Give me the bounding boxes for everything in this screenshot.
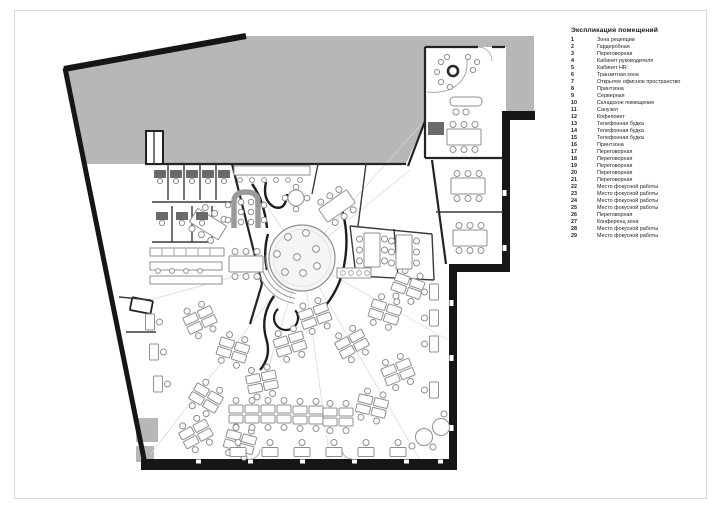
legend-item-number: 5 <box>571 65 597 72</box>
legend-item-number: 29 <box>571 233 597 240</box>
legend-item-label: Место фокусной работы <box>597 226 717 233</box>
legend-row: 7 Открытое офисное пространство <box>571 79 717 86</box>
legend-item-label: Открытое офисное пространство <box>597 79 717 86</box>
legend-row: 4 Кабинет руководителя <box>571 58 717 65</box>
legend-item-label: Санузел <box>597 107 717 114</box>
legend-item-label: Место фокусной работы <box>597 233 717 240</box>
legend-row: 24 Место фокусной работы <box>571 198 717 205</box>
legend-item-label: Серверная <box>597 93 717 100</box>
legend-row: 9 Серверная <box>571 93 717 100</box>
legend-item-number: 25 <box>571 205 597 212</box>
legend-item-number: 7 <box>571 79 597 86</box>
legend-row: 18 Переговорная <box>571 156 717 163</box>
legend-item-label: Кофепоинт <box>597 114 717 121</box>
legend-row: 29 Место фокусной работы <box>571 233 717 240</box>
legend-item-number: 3 <box>571 51 597 58</box>
legend-item-number: 16 <box>571 142 597 149</box>
legend-row: 15 Телефонная будка <box>571 135 717 142</box>
legend-item-label: Кабинет руководителя <box>597 58 717 65</box>
legend-item-label: Переговорная <box>597 149 717 156</box>
legend-row: 14 Телефонная будка <box>571 128 717 135</box>
legend-item-number: 18 <box>571 156 597 163</box>
legend-item-number: 10 <box>571 100 597 107</box>
legend-row: 1 Зона рецепции <box>571 37 717 44</box>
legend-row: 10 Складское помещение <box>571 100 717 107</box>
legend-item-label: Телефонная будка <box>597 128 717 135</box>
legend-item-label: Гардеробная <box>597 44 717 51</box>
legend-row: 3 Переговорная <box>571 51 717 58</box>
legend-item-label: Зона рецепции <box>597 37 717 44</box>
legend-item-label: Кабинет HR <box>597 65 717 72</box>
legend-item-label: Переговорная <box>597 163 717 170</box>
legend-row: 5 Кабинет HR <box>571 65 717 72</box>
legend-item-number: 14 <box>571 128 597 135</box>
legend-item-label: Телефонная будка <box>597 135 717 142</box>
legend-rows: 1 Зона рецепции 2 Гардеробная 3 Перегово… <box>571 37 717 240</box>
legend-row: 11 Санузел <box>571 107 717 114</box>
legend-item-number: 21 <box>571 177 597 184</box>
legend-item-number: 23 <box>571 191 597 198</box>
legend-item-number: 19 <box>571 163 597 170</box>
legend-row: 20 Переговорная <box>571 170 717 177</box>
legend-item-number: 8 <box>571 86 597 93</box>
legend: Экспликация помещений 1 Зона рецепции 2 … <box>571 26 717 240</box>
legend-item-number: 9 <box>571 93 597 100</box>
legend-row: 21 Переговорная <box>571 177 717 184</box>
legend-item-label: Переговорная <box>597 177 717 184</box>
legend-item-number: 13 <box>571 121 597 128</box>
legend-row: 19 Переговорная <box>571 163 717 170</box>
legend-item-label: Складское помещение <box>597 100 717 107</box>
legend-item-number: 6 <box>571 72 597 79</box>
legend-item-number: 4 <box>571 58 597 65</box>
legend-title: Экспликация помещений <box>571 26 717 35</box>
legend-row: 16 Принтзона <box>571 142 717 149</box>
legend-item-number: 1 <box>571 37 597 44</box>
legend-item-label: Место фокусной работы <box>597 184 717 191</box>
legend-item-number: 22 <box>571 184 597 191</box>
legend-item-number: 28 <box>571 226 597 233</box>
legend-row: 27 Конференц зона <box>571 219 717 226</box>
legend-item-number: 15 <box>571 135 597 142</box>
legend-row: 28 Место фокусной работы <box>571 226 717 233</box>
legend-row: 23 Место фокусной работы <box>571 191 717 198</box>
legend-item-number: 11 <box>571 107 597 114</box>
legend-row: 17 Переговорная <box>571 149 717 156</box>
legend-row: 26 Переговорная <box>571 212 717 219</box>
legend-item-number: 2 <box>571 44 597 51</box>
legend-item-label: Место фокусной работы <box>597 191 717 198</box>
legend-item-label: Переговорная <box>597 212 717 219</box>
legend-item-number: 27 <box>571 219 597 226</box>
legend-item-label: Место фокусной работы <box>597 198 717 205</box>
legend-item-number: 24 <box>571 198 597 205</box>
legend-row: 12 Кофепоинт <box>571 114 717 121</box>
legend-item-number: 17 <box>571 149 597 156</box>
legend-item-label: Конференц зона <box>597 219 717 226</box>
legend-item-label: Место фокусной работы <box>597 205 717 212</box>
legend-row: 8 Принтзона <box>571 86 717 93</box>
legend-row: 13 Телефонная будка <box>571 121 717 128</box>
legend-row: 22 Место фокусной работы <box>571 184 717 191</box>
legend-row: 6 Транзитная зона <box>571 72 717 79</box>
legend-item-number: 12 <box>571 114 597 121</box>
legend-item-number: 20 <box>571 170 597 177</box>
legend-item-label: Транзитная зона <box>597 72 717 79</box>
legend-item-label: Переговорная <box>597 170 717 177</box>
legend-item-label: Переговорная <box>597 51 717 58</box>
legend-item-label: Принтзона <box>597 142 717 149</box>
legend-item-number: 26 <box>571 212 597 219</box>
legend-item-label: Принтзона <box>597 86 717 93</box>
page: { "colors": { "site_gray": "#b7b7b7", "w… <box>0 0 720 509</box>
legend-row: 25 Место фокусной работы <box>571 205 717 212</box>
legend-item-label: Переговорная <box>597 156 717 163</box>
legend-item-label: Телефонная будка <box>597 121 717 128</box>
legend-row: 2 Гардеробная <box>571 44 717 51</box>
